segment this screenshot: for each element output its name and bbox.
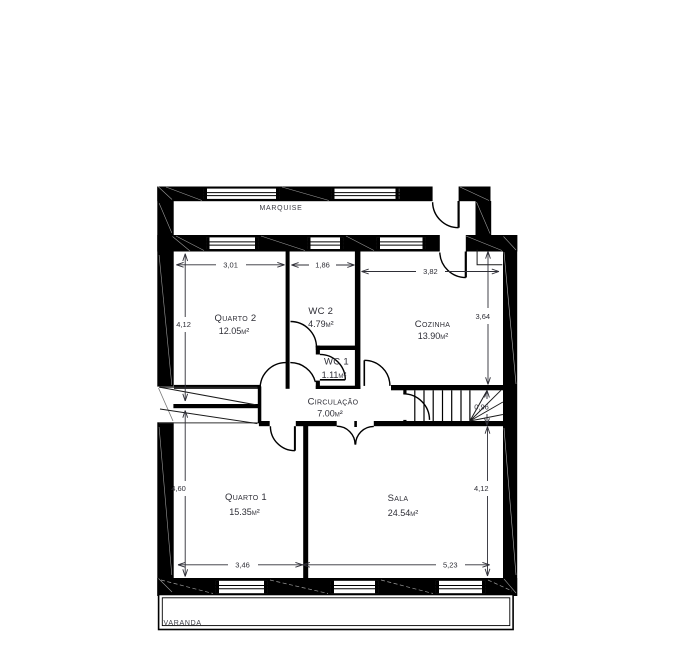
svg-text:0,96: 0,96 bbox=[474, 402, 489, 411]
svg-text:12.05m²: 12.05m² bbox=[219, 326, 250, 336]
svg-text:3,46: 3,46 bbox=[235, 560, 250, 569]
svg-text:5,23: 5,23 bbox=[443, 560, 458, 569]
svg-text:3,01: 3,01 bbox=[223, 260, 238, 269]
svg-text:3,64: 3,64 bbox=[475, 312, 490, 321]
svg-text:Circulação: Circulação bbox=[308, 397, 359, 408]
svg-text:Quarto 1: Quarto 1 bbox=[225, 492, 267, 503]
svg-text:1,86: 1,86 bbox=[315, 261, 330, 270]
svg-text:1.11m²: 1.11m² bbox=[322, 370, 347, 380]
svg-text:7.00m²: 7.00m² bbox=[317, 408, 343, 418]
svg-text:4,12: 4,12 bbox=[176, 320, 191, 329]
svg-text:MARQUISE: MARQUISE bbox=[260, 205, 303, 212]
svg-text:4,12: 4,12 bbox=[474, 484, 489, 493]
svg-text:Sala: Sala bbox=[388, 493, 409, 504]
svg-text:Cozinha: Cozinha bbox=[415, 319, 450, 330]
svg-text:4,60: 4,60 bbox=[171, 484, 186, 493]
svg-text:4.79m²: 4.79m² bbox=[308, 319, 334, 329]
svg-text:WC 1: WC 1 bbox=[324, 357, 349, 368]
svg-text:24.54m²: 24.54m² bbox=[388, 508, 419, 518]
svg-text:WC 2: WC 2 bbox=[308, 306, 333, 317]
svg-text:15.35m²: 15.35m² bbox=[229, 507, 260, 517]
svg-text:3,82: 3,82 bbox=[423, 267, 438, 276]
svg-text:Quarto 2: Quarto 2 bbox=[215, 313, 257, 324]
svg-text:VARANDA: VARANDA bbox=[164, 620, 202, 627]
svg-text:13.90m²: 13.90m² bbox=[418, 331, 449, 341]
